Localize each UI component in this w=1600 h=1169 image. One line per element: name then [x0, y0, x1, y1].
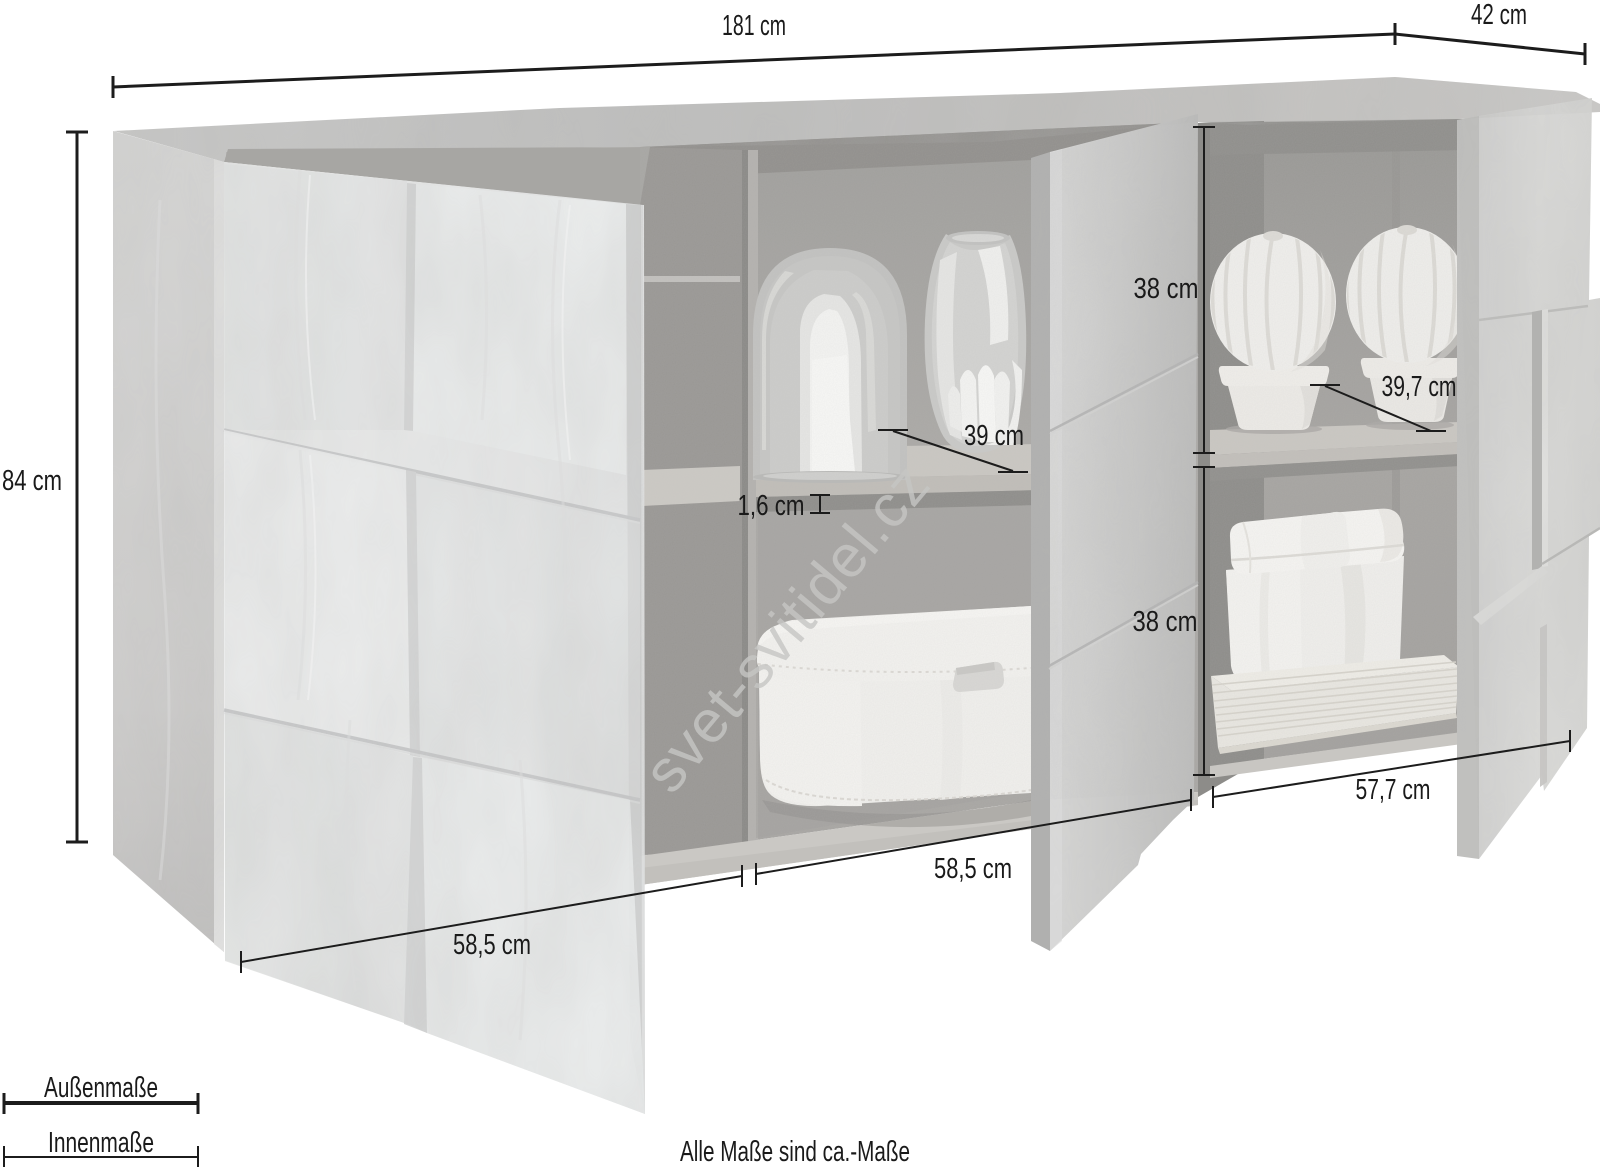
- svg-text:58,5 cm: 58,5 cm: [934, 853, 1012, 885]
- svg-text:57,7 cm: 57,7 cm: [1356, 774, 1431, 806]
- svg-text:39,7 cm: 39,7 cm: [1382, 371, 1457, 403]
- svg-text:Alle Maße sind ca.-Maße: Alle Maße sind ca.-Maße: [680, 1136, 910, 1168]
- svg-text:181 cm: 181 cm: [722, 10, 786, 42]
- svg-text:58,5 cm: 58,5 cm: [453, 929, 531, 961]
- svg-text:38 cm: 38 cm: [1133, 606, 1198, 638]
- svg-text:38 cm: 38 cm: [1134, 273, 1199, 305]
- svg-text:1,6 cm: 1,6 cm: [738, 490, 805, 522]
- svg-text:Außenmaße: Außenmaße: [44, 1072, 158, 1104]
- svg-text:Innenmaße: Innenmaße: [48, 1127, 154, 1159]
- svg-text:39 cm: 39 cm: [964, 420, 1024, 452]
- svg-text:42 cm: 42 cm: [1471, 0, 1527, 31]
- svg-text:84 cm: 84 cm: [2, 465, 62, 497]
